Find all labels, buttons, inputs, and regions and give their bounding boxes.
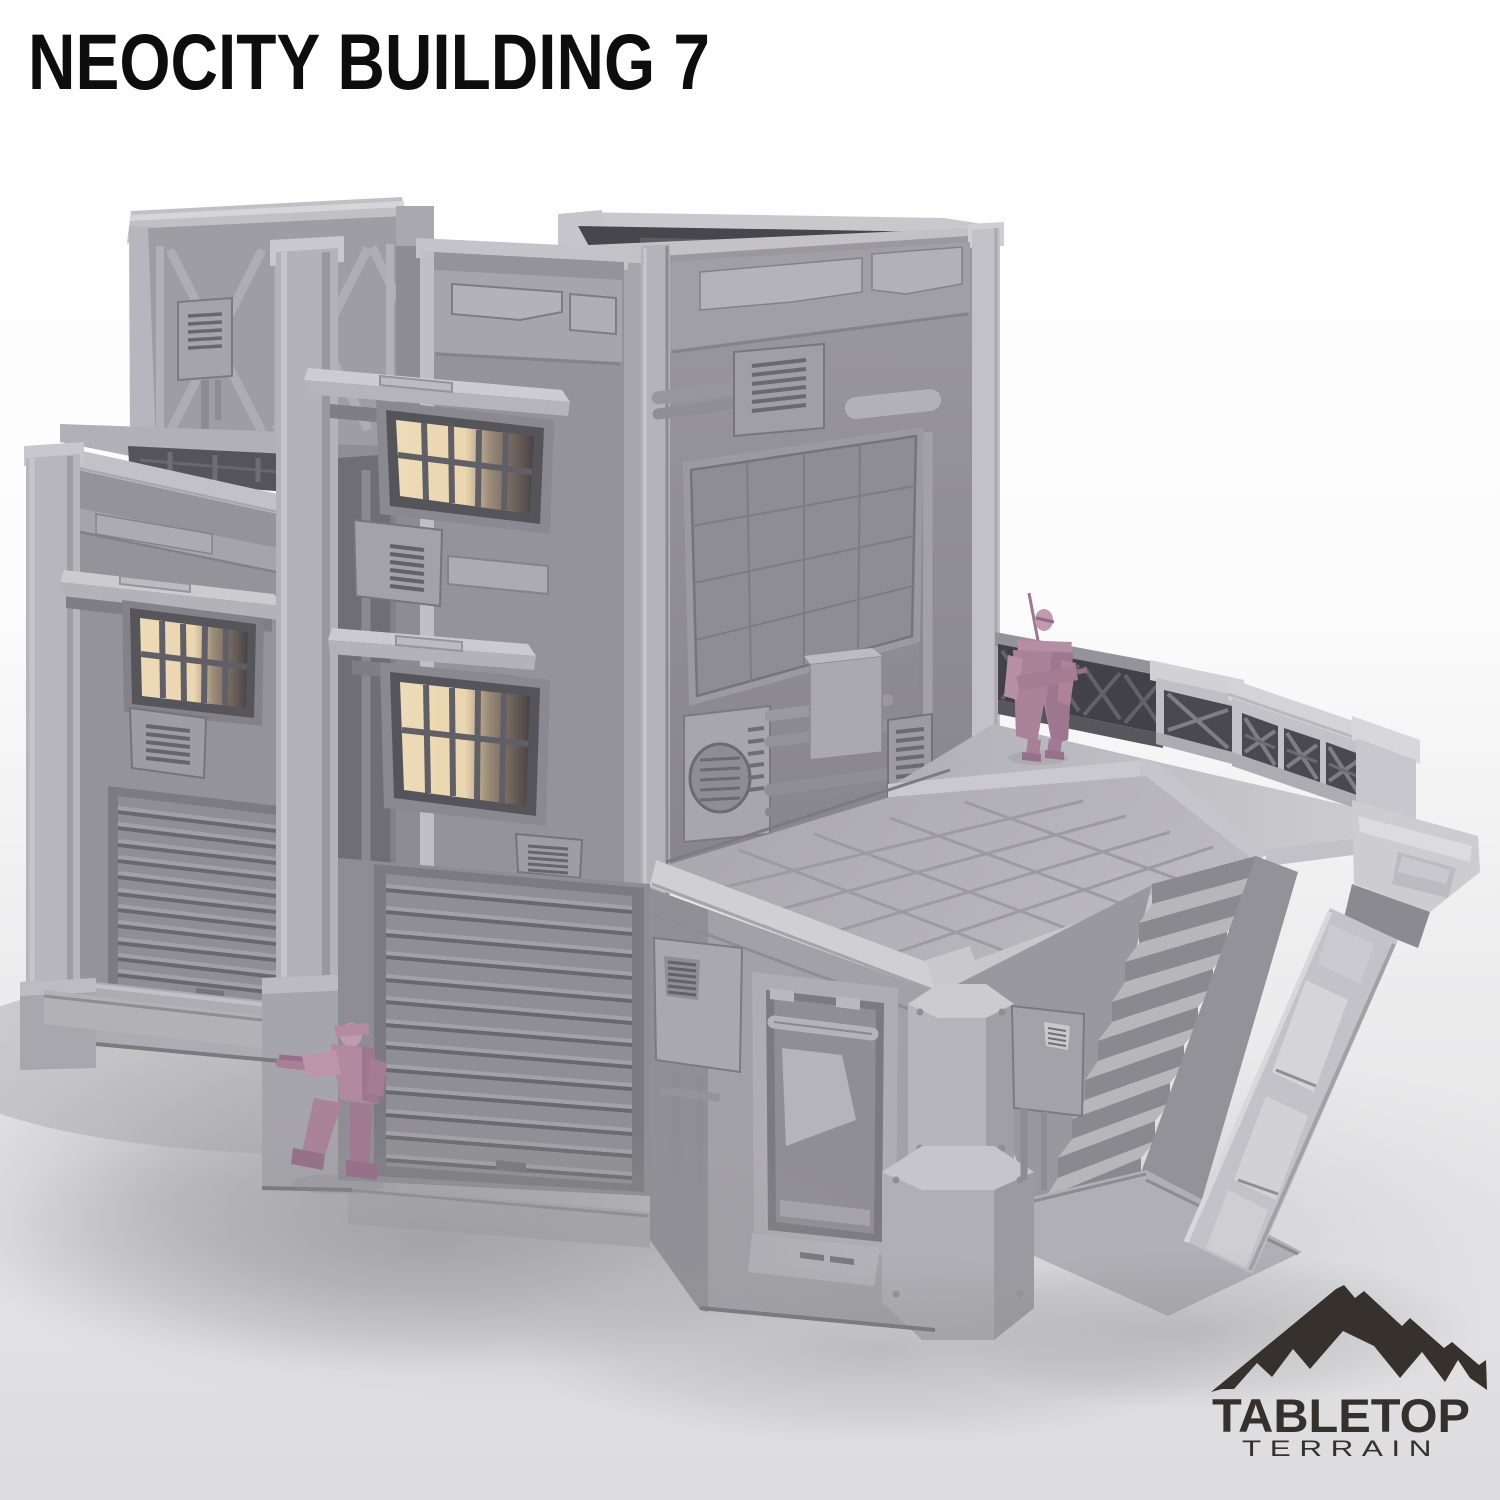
svg-text:NEOCITY BUILDING 7: NEOCITY BUILDING 7 xyxy=(28,17,710,106)
svg-text:TABLETOP: TABLETOP xyxy=(1212,1389,1470,1442)
svg-text:TERRAIN: TERRAIN xyxy=(1242,1436,1440,1461)
